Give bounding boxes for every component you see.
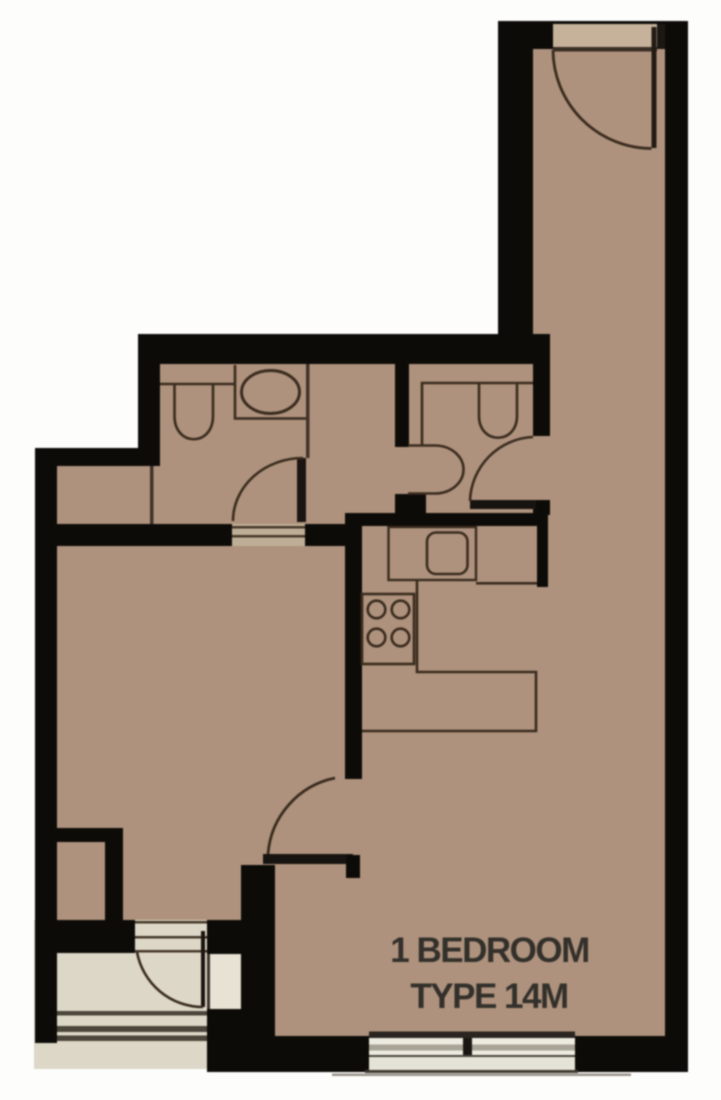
svg-text:TYPE 14M: TYPE 14M	[410, 977, 567, 1016]
svg-text:1 BEDROOM: 1 BEDROOM	[390, 931, 588, 970]
